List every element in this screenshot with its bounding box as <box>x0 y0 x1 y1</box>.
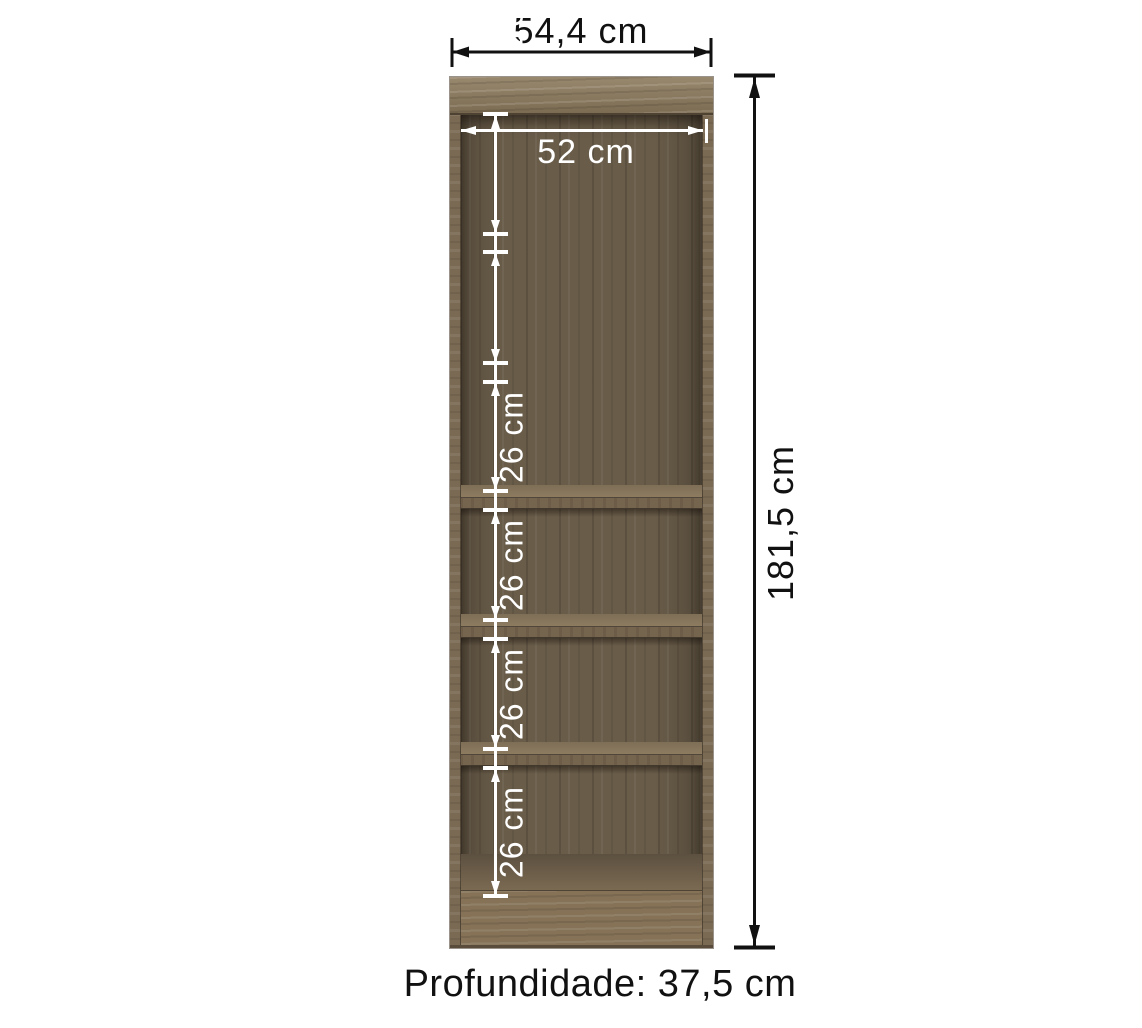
bookcase <box>450 77 713 948</box>
shelf-front-edge <box>460 626 703 638</box>
shelf-shadow <box>460 509 703 517</box>
shelf-top-face <box>460 742 703 754</box>
shelf <box>460 742 703 772</box>
section-height-label: 26 cm <box>494 519 531 611</box>
inner-width-dimension-label: 52 cm <box>537 133 635 172</box>
shelf-front-edge <box>460 754 703 766</box>
diagram-canvas: 54,4 cm 52 cm 26 cm 26 cm 26 cm 26 cm 26… <box>0 0 1142 1028</box>
bookcase-top-panel <box>450 77 713 115</box>
height-dimension-label: 181,5 cm <box>760 445 802 601</box>
shelf-shadow <box>460 638 703 646</box>
section-height-label: 26 cm <box>494 648 531 740</box>
section-height-label: 26 cm <box>494 786 531 878</box>
shelf-front-edge <box>460 497 703 509</box>
section-height-label: 26 cm <box>494 391 531 483</box>
shelf-shadow <box>460 766 703 774</box>
width-dimension-label: 54,4 cm <box>513 10 648 52</box>
section-height-label: 26 cm <box>494 0 531 46</box>
bookcase-base-panel <box>456 890 707 946</box>
shelf-top-face <box>460 614 703 626</box>
bookcase-bottom-edge <box>450 945 713 948</box>
shelf-top-face <box>460 485 703 497</box>
shelf <box>460 614 703 644</box>
shelf <box>460 485 703 515</box>
bookcase-right-side-panel <box>702 113 713 948</box>
depth-label: Profundidade: 37,5 cm <box>404 963 797 1006</box>
bookcase-left-side-panel <box>450 113 461 948</box>
